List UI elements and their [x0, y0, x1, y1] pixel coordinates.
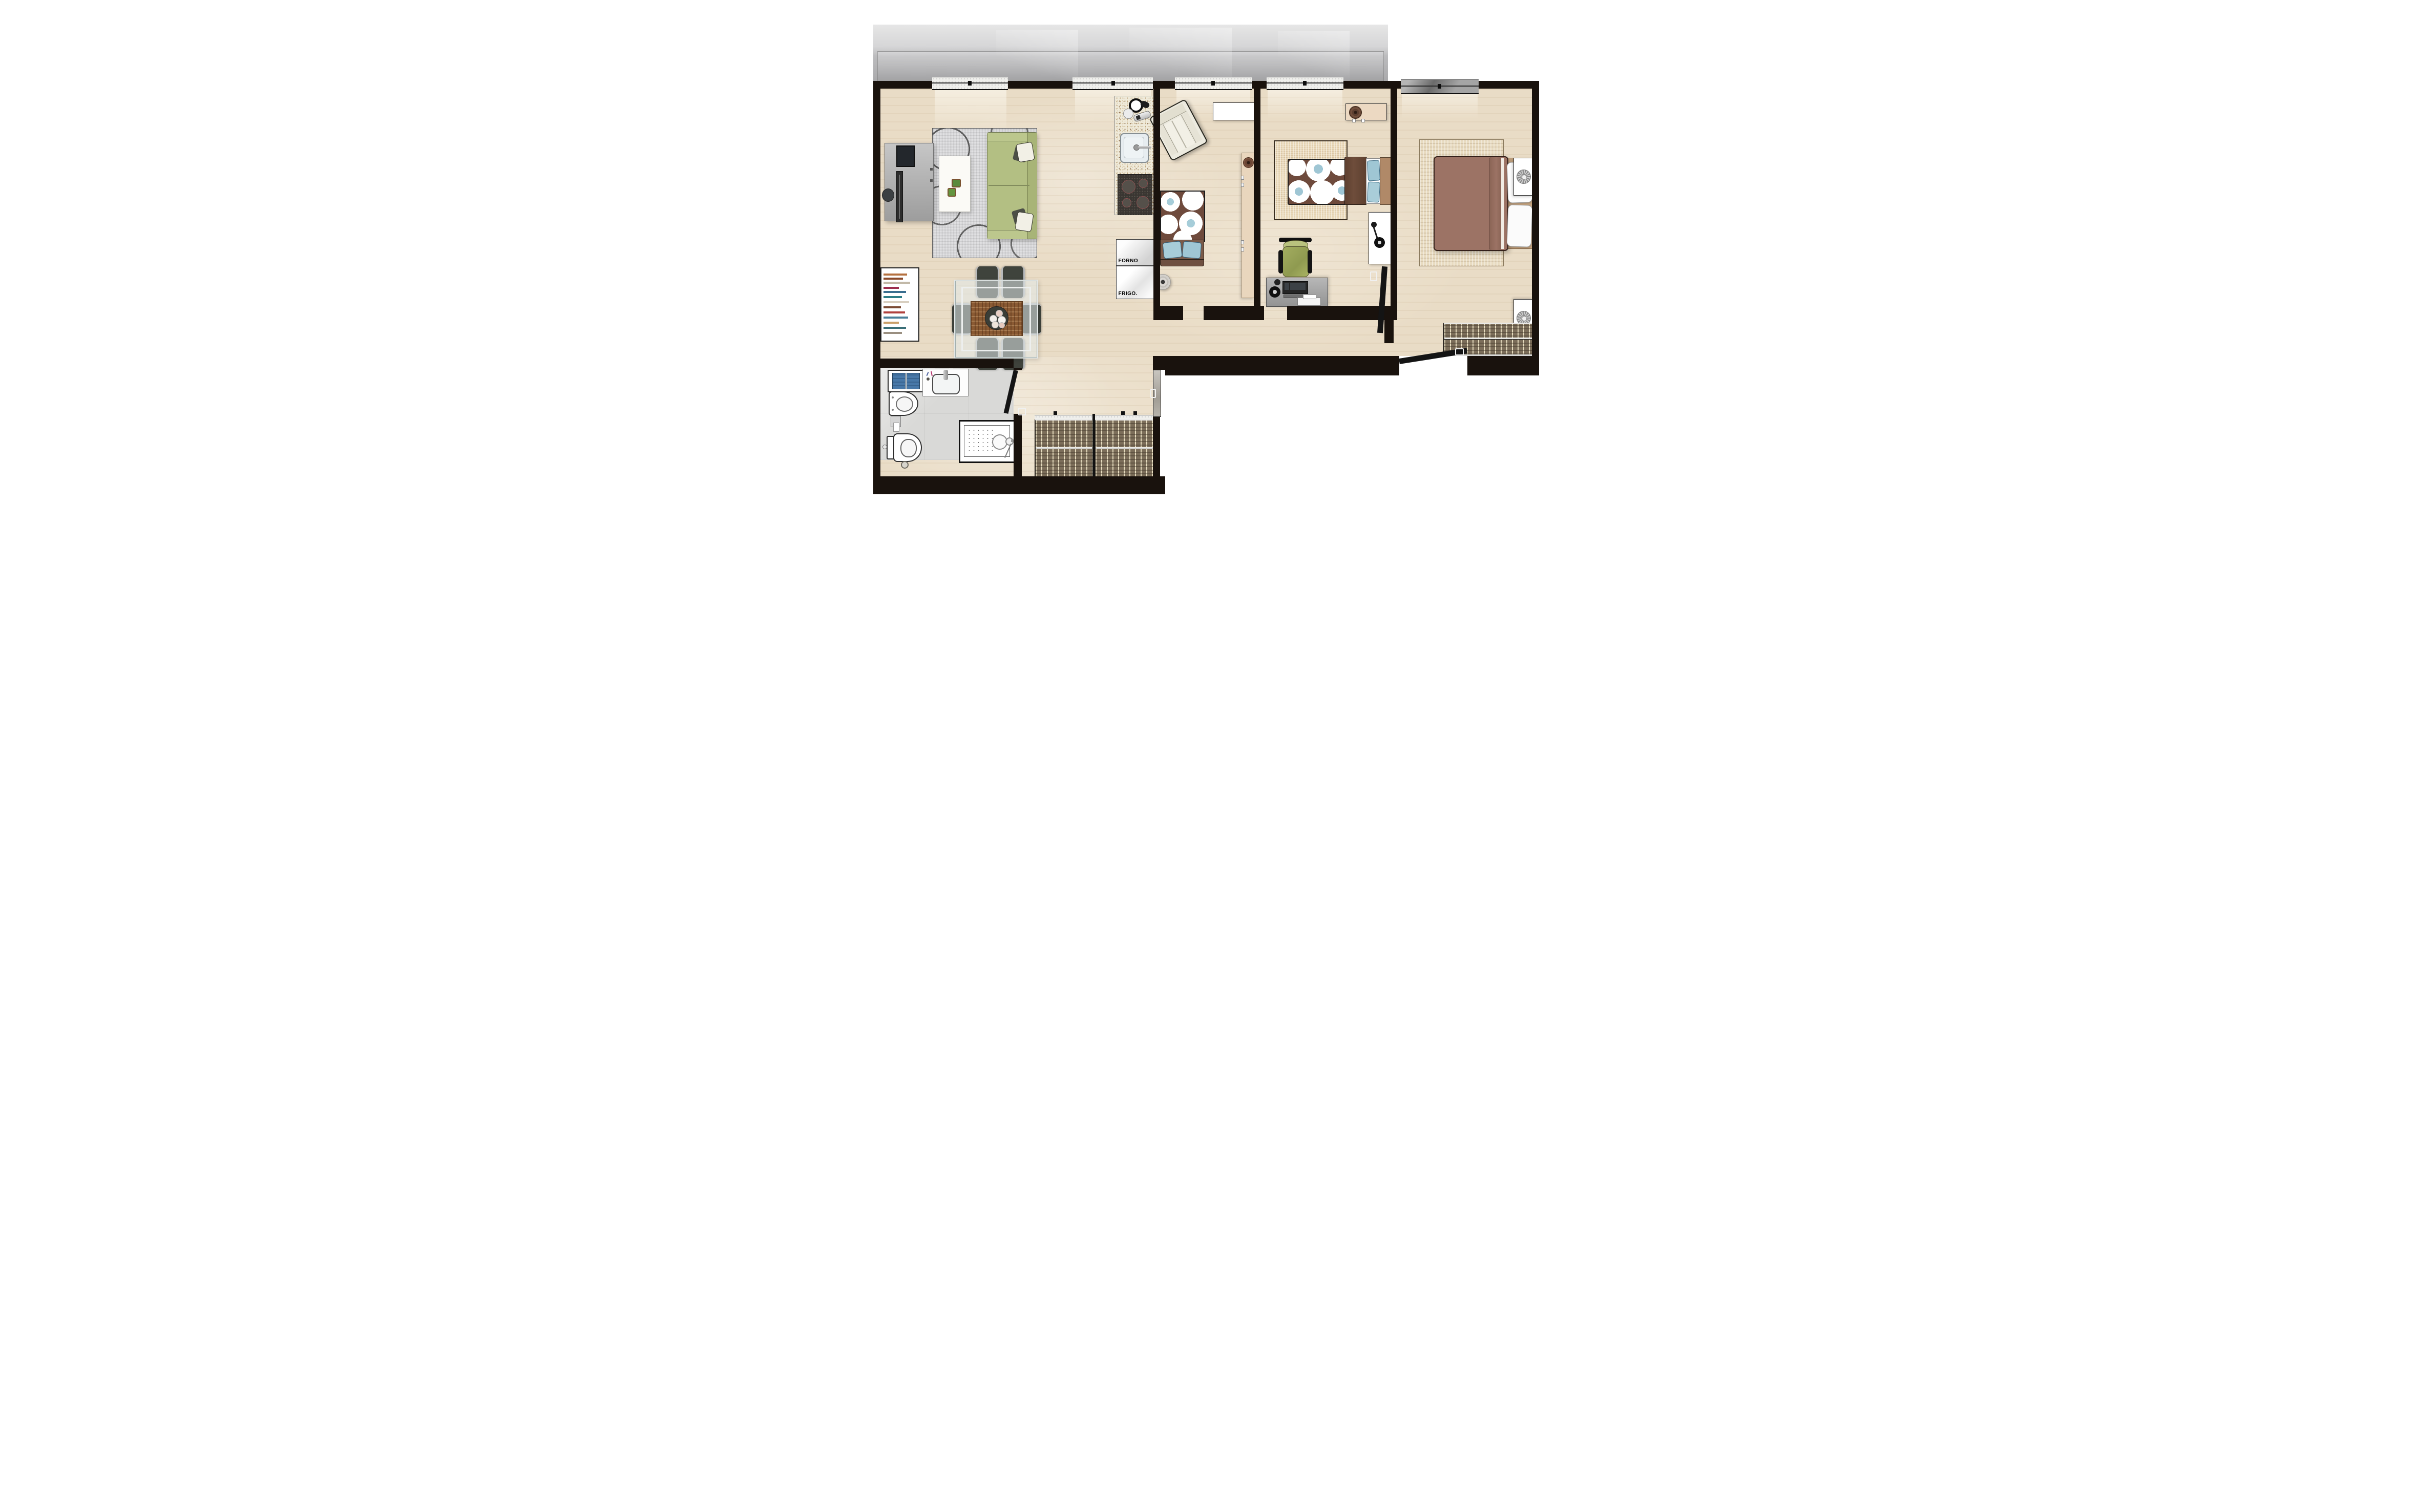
tv-sideboard — [885, 143, 934, 221]
sofa-cushion-white — [1015, 212, 1034, 233]
duvet-fold — [1489, 157, 1502, 250]
master-bed-duvet — [1434, 156, 1508, 251]
oven: FORNO — [1116, 239, 1154, 266]
bedroom1-wardrobe — [1242, 153, 1254, 298]
bedroom2-shelf — [1345, 103, 1387, 120]
bidet — [889, 391, 918, 416]
window-mullion — [1211, 81, 1215, 86]
soap-dot — [927, 377, 930, 381]
oven-label: FORNO — [1119, 258, 1139, 264]
book — [884, 317, 908, 319]
printer — [1297, 298, 1321, 306]
entrance-door-handle — [1150, 389, 1156, 398]
wall-master-left — [1391, 89, 1397, 320]
wall-left — [873, 81, 880, 494]
coffee-table — [939, 156, 971, 212]
soundbar — [896, 171, 903, 222]
terrace — [873, 25, 1388, 82]
book — [884, 287, 899, 289]
terrace-light-streak — [1278, 31, 1350, 81]
daybed-pillow — [1182, 241, 1202, 259]
shower-dots — [967, 428, 996, 453]
wall-top — [1252, 81, 1267, 89]
master-door-handle — [1455, 348, 1464, 355]
wall-bedroom2-bottom — [1287, 306, 1391, 320]
kitchen-appliance-dish — [1123, 109, 1133, 119]
desk-lamp-base — [1269, 286, 1280, 298]
radiator-divider — [1444, 338, 1535, 339]
terrace-light-streak — [996, 30, 1078, 81]
wardrobe-knob — [1241, 176, 1244, 180]
book — [884, 311, 905, 313]
book — [884, 332, 902, 334]
sink-faucet — [1138, 146, 1151, 149]
speaker-cone — [882, 188, 894, 202]
fridge-label: FRIGO. — [1119, 291, 1138, 297]
daybed-pillow-section — [1160, 240, 1204, 260]
wall-bathroom-right — [1014, 368, 1022, 370]
shelf-leg — [1361, 119, 1365, 122]
lamp-base-screw — [1378, 241, 1381, 244]
chair-armrest — [1308, 250, 1312, 274]
bookshelf — [880, 267, 919, 342]
bedroom1-shelf — [1213, 102, 1254, 120]
towel — [907, 373, 920, 389]
kitchen-sink — [1120, 133, 1149, 163]
wall-top — [1008, 81, 1072, 89]
toilet-bowl — [893, 433, 922, 462]
nightstand-lamp — [1517, 170, 1531, 184]
toilet-paper-holder — [891, 416, 901, 427]
corridor-radiator — [1035, 419, 1095, 479]
daybed-mattress — [1160, 191, 1205, 242]
radiator-divider — [1096, 447, 1154, 449]
wall-bottom-right-section — [1165, 356, 1399, 375]
faucet — [943, 370, 948, 380]
bidet-inner — [896, 396, 913, 412]
printer-tray — [1303, 295, 1316, 299]
toilet-flush-dot — [882, 445, 887, 449]
wardrobe-knob — [1241, 183, 1244, 187]
dining-table — [954, 280, 1038, 359]
dish — [992, 321, 999, 328]
toilet — [887, 433, 920, 460]
sofa-armrest — [987, 230, 1027, 239]
fridge: FRIGO. — [1116, 266, 1154, 299]
book — [884, 296, 902, 298]
floor-plan: FORNO FRIGO. — [807, 0, 1613, 504]
soundbar-slot — [899, 175, 900, 219]
wall-top — [873, 81, 932, 89]
pillow-blue — [1366, 160, 1380, 181]
wall-bathroom-right — [1014, 414, 1022, 476]
toiletry — [926, 372, 929, 376]
entrance-door — [1153, 370, 1161, 417]
shower-drain — [992, 434, 1007, 450]
monitor-tab — [1285, 283, 1289, 290]
centerpiece-bowl — [985, 306, 1008, 330]
pillow-blue — [1366, 181, 1380, 202]
bathroom-door-handle — [1018, 408, 1026, 415]
window-bedroom1 — [1175, 77, 1252, 90]
desk-lamp-base — [1374, 237, 1385, 248]
sheet-edge — [1501, 158, 1504, 249]
cooktop — [1118, 174, 1152, 215]
wall-hinge-stub — [1384, 317, 1394, 343]
bathroom-vanity — [922, 369, 969, 396]
daybed-pillow — [1162, 241, 1182, 259]
wall-bottom-right-section — [1467, 356, 1539, 375]
shelf-coil-decor — [1349, 106, 1362, 119]
burner — [1122, 198, 1131, 207]
sofa-cushion-white — [1016, 141, 1035, 162]
wall-bedroom1-bottom — [1204, 306, 1254, 320]
master-pillow — [1506, 204, 1532, 247]
sofa-seat-seam — [988, 185, 1029, 186]
mount-dot — [892, 396, 894, 398]
wall-bedroom1-bottom — [1153, 306, 1183, 320]
window-clip — [1121, 411, 1125, 415]
terrace-light-streak — [1129, 28, 1232, 81]
daybed-footboard — [1160, 259, 1204, 266]
tv-screen — [896, 145, 915, 167]
wall-top — [1153, 81, 1175, 89]
shelf-leg — [1352, 119, 1356, 122]
wardrobe-knob — [1241, 247, 1244, 251]
desk-lamp-arm — [1373, 226, 1378, 239]
floor-drain — [901, 461, 909, 469]
dish — [999, 322, 1005, 328]
towel — [892, 373, 906, 389]
hallway-door-handle — [1370, 271, 1377, 281]
window-bedroom2 — [1267, 77, 1343, 90]
wardrobe-knob — [1241, 240, 1244, 244]
window-mullion — [968, 81, 972, 86]
window-mullion — [1111, 81, 1115, 86]
corridor-radiator — [1095, 419, 1155, 479]
wall-kitchen-bedroom1 — [1153, 89, 1160, 306]
wall-bedroom2-bottom — [1260, 306, 1264, 320]
chair-seat — [1282, 246, 1309, 277]
knob — [930, 179, 933, 182]
sofa — [987, 132, 1037, 239]
shower — [959, 420, 1016, 463]
book — [884, 291, 906, 293]
wardrobe-speaker — [1243, 157, 1254, 168]
wall-top — [1343, 81, 1401, 89]
window-pillar — [1092, 414, 1095, 476]
book — [884, 282, 910, 284]
book — [884, 327, 906, 329]
wall-bedroom1-bedroom2 — [1254, 89, 1260, 320]
desk-lamp-head — [1274, 279, 1280, 285]
window-mullion — [1438, 84, 1441, 89]
wall-right — [1532, 81, 1539, 375]
book — [884, 306, 901, 308]
window-clip — [1133, 411, 1137, 415]
bedroom2-bed-duvet — [1288, 159, 1347, 205]
monitor-screen — [1290, 283, 1306, 290]
window-master — [1401, 79, 1479, 94]
lamp-core — [1522, 175, 1527, 180]
book — [884, 322, 899, 324]
bedroom2-nightstand — [1369, 212, 1393, 264]
plant — [952, 179, 961, 187]
mount-dot — [892, 409, 894, 411]
toaster-band — [1135, 115, 1141, 120]
balcony-door-living — [932, 77, 1008, 90]
towel-rack — [888, 370, 923, 392]
radiator-divider — [1036, 447, 1094, 449]
bedroom2-bed-fold — [1344, 157, 1367, 205]
paper-roll — [893, 423, 899, 432]
balcony-door-kitchen — [1072, 77, 1153, 90]
toilet-seat — [900, 439, 917, 457]
master-nightstand — [1513, 158, 1533, 196]
wall-top — [1479, 81, 1539, 89]
sofa-armrest — [987, 133, 1027, 141]
bedroom2-desk — [1266, 278, 1328, 307]
book — [884, 274, 907, 276]
lamp-core — [1522, 316, 1527, 321]
lamp-base-screw — [1273, 290, 1277, 294]
wall-bottom-left-section — [873, 476, 1165, 494]
book — [884, 301, 909, 303]
wall-corridor-right — [1153, 416, 1160, 476]
monitor — [1282, 281, 1308, 294]
toiletry — [931, 371, 933, 376]
chair-armrest — [1278, 250, 1283, 274]
plant — [948, 188, 956, 197]
wall-corridor-right — [1153, 356, 1165, 370]
bedroom2-pillows — [1366, 158, 1381, 204]
window-clip — [1054, 411, 1057, 415]
office-chair — [1279, 238, 1312, 277]
wall-living-bathroom — [880, 359, 1014, 368]
window-mullion — [1303, 81, 1307, 86]
book — [884, 278, 903, 280]
knob — [930, 168, 933, 171]
burner — [1137, 196, 1149, 209]
burner — [1139, 179, 1148, 188]
burner — [1122, 180, 1135, 194]
